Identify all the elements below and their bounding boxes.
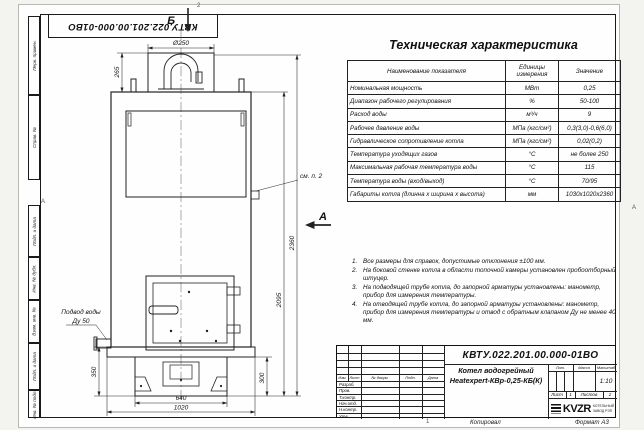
drawing-sheet: Перв. примен. Справ. № Подп. и дата Инв.…	[0, 0, 644, 430]
note-item: 3.На подводящей трубе котла, до запорной…	[352, 284, 618, 300]
spec-row: Рабочее давление водыМПа (кгс/см²)0,3(3,…	[348, 121, 621, 134]
water-inlet-fitting	[94, 337, 111, 350]
spec-row: Расход водым³/ч9	[348, 108, 621, 121]
stamp-title-line1: Котел водогрейный	[444, 366, 548, 376]
view-label-b: Б	[167, 15, 175, 27]
note-item: 4.На отводящей трубе котла, до запорной …	[352, 301, 618, 325]
col-data: Дата	[422, 375, 444, 380]
lifting-lug-left	[131, 79, 136, 92]
lifting-lug-right	[239, 79, 244, 92]
label-massa: Масса	[573, 365, 595, 370]
notes-list: 1.Все размеры для справок, допустимые от…	[352, 258, 618, 326]
dim-265: 265	[114, 66, 121, 78]
dim-300: 300	[259, 372, 266, 383]
kvzr-logo-icon	[551, 404, 561, 414]
kvzr-logo-text: KVZR	[563, 403, 591, 415]
view-label-a: А	[318, 211, 327, 223]
spec-row: Номинальная мощностьМВт0,25	[348, 82, 621, 95]
dim-diameter-250: Ø250	[172, 40, 189, 47]
spec-col-name: Наименование показателя	[348, 61, 506, 82]
view-marker-a	[305, 221, 331, 229]
spec-row: Максимальная рабочая температура воды°С1…	[348, 161, 621, 174]
dim-640: 640	[176, 395, 187, 402]
company-logo: KVZR КОТЕЛЬНЫЙ ЗАВОД РЭП	[548, 398, 617, 419]
col-izm: Изм.	[337, 375, 348, 380]
spec-row: Гидравлическое сопротивление котлаМПа (к…	[348, 135, 621, 148]
title-block: Изм. Лист № докум. Подп. Дата Разраб. Пр…	[336, 345, 616, 418]
col-list: Лист	[348, 375, 361, 380]
role-tkontr: Т.контр.	[339, 395, 361, 400]
spec-header-row: Наименование показателя Единицы измерени…	[348, 61, 621, 82]
label-lit: Лит.	[548, 365, 573, 370]
role-utv: Утв.	[339, 414, 361, 419]
note-item: 2.На боковой стенке котла в области топо…	[352, 267, 618, 283]
spec-table: Наименование показателя Единицы измерени…	[347, 60, 621, 202]
dim-2095: 2095	[276, 292, 283, 308]
copied-label: Копировал	[470, 419, 501, 426]
col-podp: Подп.	[399, 375, 422, 380]
scale-value: 1:10	[595, 371, 617, 391]
spec-row: Температура уходящих газов°Сне более 250	[348, 148, 621, 161]
note-item: 1.Все размеры для справок, допустимые от…	[352, 258, 618, 266]
dim-2360: 2360	[289, 235, 296, 251]
dimension-lines	[94, 44, 301, 416]
kvzr-logo-subtext: КОТЕЛЬНЫЙ ЗАВОД РЭП	[593, 404, 614, 413]
spec-col-value: Значение	[559, 61, 621, 82]
sheet-label: Лист	[548, 392, 566, 397]
spec-row: Температура воды (вход/выход)°С70/95	[348, 175, 621, 188]
dim-350: 350	[91, 366, 98, 377]
format-label: Формат А3	[575, 419, 609, 426]
role-nachotd: Нач.отд.	[339, 401, 361, 406]
spec-col-unit: Единицы измерения	[506, 61, 559, 82]
sheets-label: Листов	[575, 392, 603, 397]
stamp-title-line2: Heatexpert-КВр-0,25-КБ(К)	[444, 376, 548, 386]
role-prov: Пров.	[339, 388, 361, 393]
spec-row: Габариты котла (длинна х ширина х высота…	[348, 188, 621, 201]
role-razrab: Разраб.	[339, 382, 361, 387]
stamp-title: Котел водогрейный Heatexpert-КВр-0,25-КБ…	[444, 366, 548, 386]
dim-1020: 1020	[174, 405, 189, 412]
role-nkontr: Н.контр.	[339, 407, 361, 412]
furnace-door	[146, 276, 240, 350]
water-inlet-label-1: Подвод воды	[61, 308, 101, 316]
view-marker-b	[185, 8, 192, 32]
stamp-doc-number: КВТУ.022.201.00.000-01ВО	[444, 346, 617, 364]
sheets-total: 2	[603, 392, 617, 397]
label-masshtab: Масштаб	[595, 365, 617, 370]
spec-table-title: Техническая характеристика	[347, 38, 620, 52]
callout-see-note-2: см. п. 2	[300, 173, 323, 180]
spec-row: Диапазон рабочего регулирования%50-100	[348, 95, 621, 108]
upper-panel	[126, 111, 246, 197]
col-ndocum: № докум.	[361, 375, 399, 380]
sampling-fitting	[251, 191, 259, 199]
water-inlet-label-2: Ду 50	[72, 318, 90, 325]
sheet-number: 1	[566, 392, 575, 397]
